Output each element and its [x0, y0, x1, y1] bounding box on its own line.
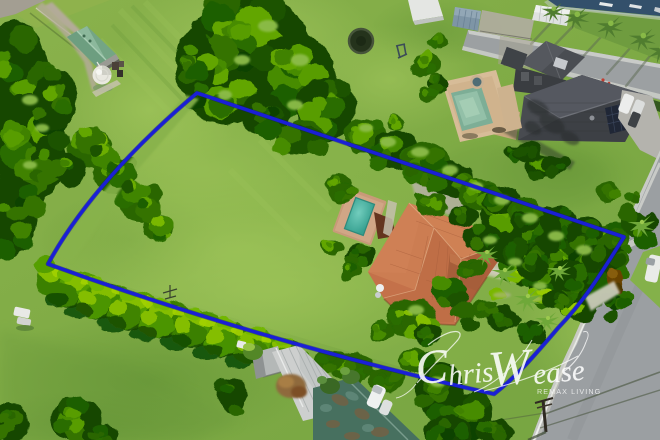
svg-text:REMAX LIVING: REMAX LIVING [537, 387, 601, 396]
svg-text:ease: ease [532, 355, 586, 391]
